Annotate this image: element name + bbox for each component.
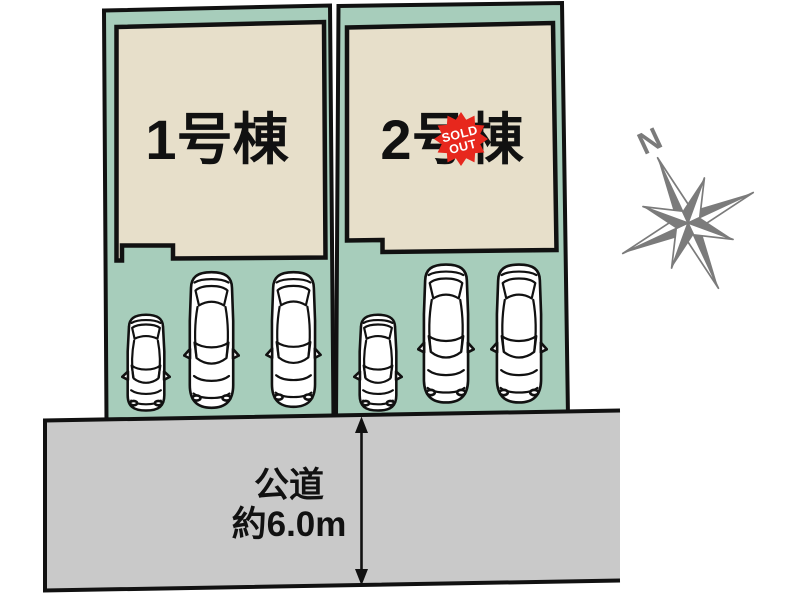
site-plan: 1号棟 2号棟 SOLD OUT 公道 約6.0m [0, 0, 800, 600]
lot2-small-car-icon [354, 315, 402, 411]
public-road: 公道 約6.0m [45, 411, 620, 591]
road-name-label: 公道 [254, 466, 324, 505]
lot1-small-car-icon [122, 315, 170, 411]
compass-rose-icon: N [577, 95, 784, 319]
site-plan-drawing: 1号棟 2号棟 SOLD OUT 公道 約6.0m [0, 0, 800, 600]
road-width-label: 約6.0m [232, 505, 347, 544]
lot2-sedan-car-icon-2 [491, 265, 547, 403]
lot2-sedan-car-icon-1 [418, 265, 474, 403]
lot-2: 2号棟 SOLD OUT [336, 3, 568, 419]
compass-north-label: N [632, 120, 667, 161]
lot1-sedan-car-icon-2 [266, 272, 320, 407]
road-area [45, 411, 620, 591]
lot-1: 1号棟 [104, 6, 334, 422]
building-1-label: 1号棟 [145, 108, 289, 171]
lot1-sedan-car-icon-1 [184, 272, 239, 408]
